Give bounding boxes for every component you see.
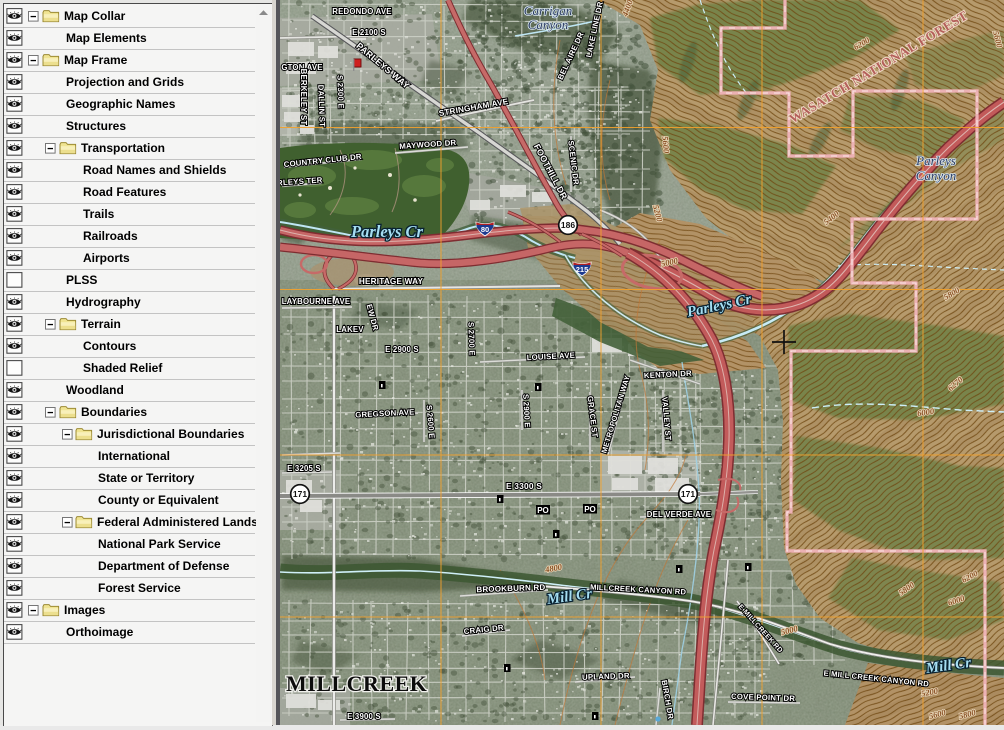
- svg-text:Carrigan: Carrigan: [524, 3, 572, 18]
- svg-text:PO: PO: [584, 505, 596, 514]
- svg-text:REDONDO AVE: REDONDO AVE: [332, 7, 391, 16]
- svg-text:E 3205 S: E 3205 S: [287, 464, 321, 473]
- svg-text:HERITAGE WAY: HERITAGE WAY: [359, 277, 424, 286]
- svg-text:5600: 5600: [660, 136, 672, 155]
- svg-text:215: 215: [576, 265, 589, 274]
- svg-text:S 2900 E: S 2900 E: [521, 394, 532, 428]
- svg-text:DEL VERDE AVE: DEL VERDE AVE: [647, 510, 711, 519]
- svg-text:S 2300 E: S 2300 E: [335, 75, 345, 109]
- svg-text:Parleys Cr: Parleys Cr: [350, 222, 424, 241]
- svg-text:PO: PO: [537, 506, 549, 515]
- svg-text:E 3900 S: E 3900 S: [347, 712, 381, 721]
- svg-text:Canyon: Canyon: [528, 17, 568, 32]
- svg-text:Canyon: Canyon: [916, 168, 956, 183]
- svg-text:UPLAND DR: UPLAND DR: [582, 671, 630, 682]
- svg-text:S 2700 E: S 2700 E: [466, 322, 476, 356]
- svg-text:186: 186: [561, 220, 575, 230]
- svg-text:Parleys: Parleys: [915, 153, 956, 168]
- svg-text:DALLIN ST: DALLIN ST: [316, 85, 326, 128]
- svg-text:MILLCREEK: MILLCREEK: [286, 671, 427, 696]
- svg-text:171: 171: [293, 489, 307, 499]
- svg-text:LAKEV: LAKEV: [336, 325, 364, 334]
- svg-text:LAYBOURNE AVE: LAYBOURNE AVE: [282, 297, 351, 306]
- svg-text:BERKELEY ST: BERKELEY ST: [299, 69, 308, 126]
- svg-text:171: 171: [681, 489, 695, 499]
- svg-text:80: 80: [481, 225, 489, 234]
- svg-text:E 2100 S: E 2100 S: [352, 28, 386, 37]
- svg-text:E 2900 S: E 2900 S: [385, 345, 419, 354]
- svg-text:E 3300 S: E 3300 S: [506, 481, 542, 491]
